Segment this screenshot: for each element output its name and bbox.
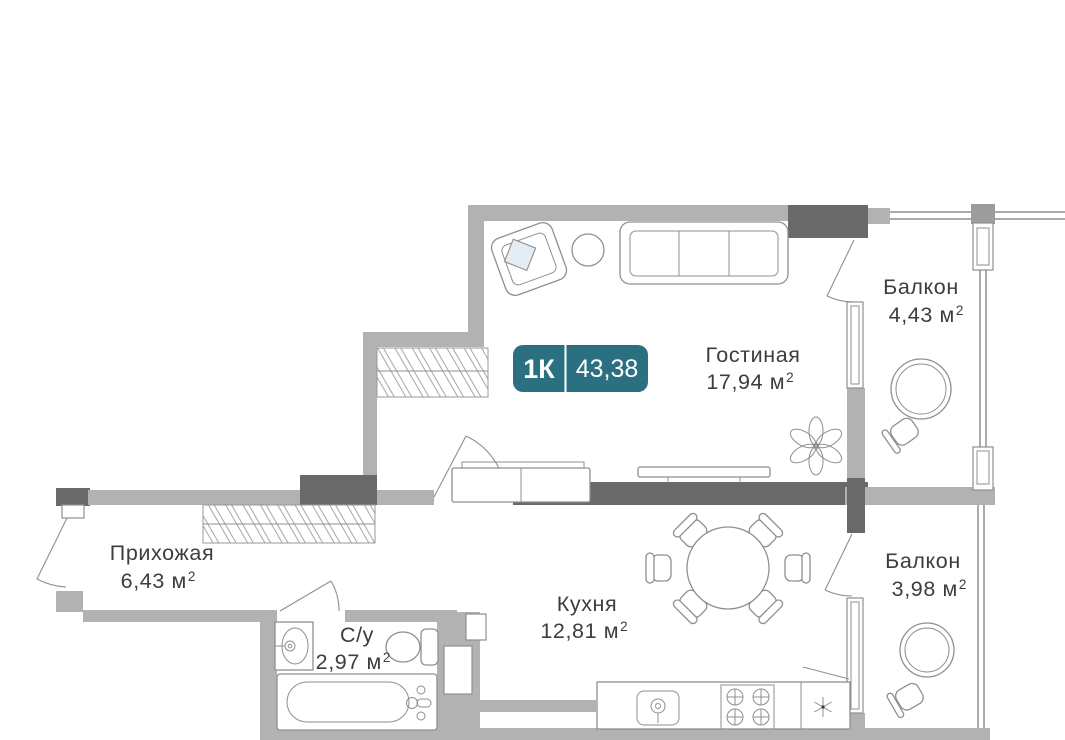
entrance-door (37, 518, 67, 587)
pylon-balcony-top (847, 476, 865, 505)
label-balcony-top-name: Балкон (883, 275, 959, 299)
floor-plan: Гостиная 17,94 м2 Балкон 4,43 м2 Балкон … (0, 0, 1065, 740)
label-hallway-area: 6,43 м2 (121, 569, 196, 593)
bathroom-door (280, 581, 339, 611)
pylon-hallway (300, 475, 377, 505)
tv-stand (452, 462, 590, 502)
label-kitchen-area: 12,81 м2 (540, 619, 627, 643)
dining-table (687, 527, 769, 609)
sofa (620, 222, 788, 284)
entry-pylon (56, 488, 90, 506)
wall-living-left (468, 205, 484, 347)
label-balcony-top-area: 4,43 м2 (889, 303, 964, 327)
badge-total-area: 43,38 (576, 355, 639, 383)
window-frame (973, 223, 993, 270)
dining-set (646, 512, 810, 625)
wall-living-top (468, 205, 788, 221)
label-balcony-bottom-name: Балкон (885, 549, 961, 573)
toilet (386, 629, 438, 665)
plant-icon (787, 417, 844, 475)
balcony-stool (886, 679, 927, 718)
label-living-area: 17,94 м2 (706, 370, 793, 394)
wall-living-balcony (847, 388, 865, 478)
label-bathroom-area: 2,97 м2 (316, 650, 391, 674)
balcony-stool (881, 414, 923, 454)
wall-entry-step (56, 591, 83, 612)
shaft-niche (444, 646, 472, 694)
balcony-window (847, 302, 863, 388)
dining-chair (646, 553, 671, 583)
wall-hallway-bottom (83, 610, 274, 622)
entry-door-frame (62, 505, 84, 518)
wall-pylon-top (788, 205, 868, 238)
pylon-balcony-bottom (847, 505, 865, 533)
dining-chair (785, 553, 810, 583)
label-kitchen-name: Кухня (557, 592, 618, 616)
wall-kitchen-halfwall (480, 700, 596, 712)
label-hallway-name: Прихожая (110, 541, 214, 565)
balcony-table (900, 623, 954, 677)
wall-corridor-left (363, 347, 377, 477)
label-bathroom-name: С/у (340, 623, 374, 647)
label-living-name: Гостиная (705, 343, 800, 367)
door-jamb (466, 614, 486, 640)
side-table (572, 234, 604, 266)
apartment-badge: 1К 43,38 (513, 345, 648, 392)
floor-plan-canvas: Гостиная 17,94 м2 Балкон 4,43 м2 Балкон … (0, 0, 1065, 740)
balcony-table (891, 359, 951, 419)
wall-step (363, 332, 468, 347)
wall-hallway-top2 (377, 490, 434, 505)
wardrobe-living (377, 348, 488, 397)
living-balcony-door (827, 240, 854, 302)
tv (638, 467, 770, 483)
label-balcony-bottom-area: 3,98 м2 (892, 577, 967, 601)
bathtub (277, 674, 437, 730)
bathroom-sink (275, 622, 313, 670)
wall-hallway-top (88, 490, 300, 505)
armchair (489, 220, 570, 298)
badge-rooms-label: 1К (523, 354, 555, 384)
kitchen-counter (597, 682, 850, 729)
corner-column (971, 204, 995, 224)
wardrobe-hallway (203, 505, 375, 543)
wall-stub (868, 208, 890, 224)
